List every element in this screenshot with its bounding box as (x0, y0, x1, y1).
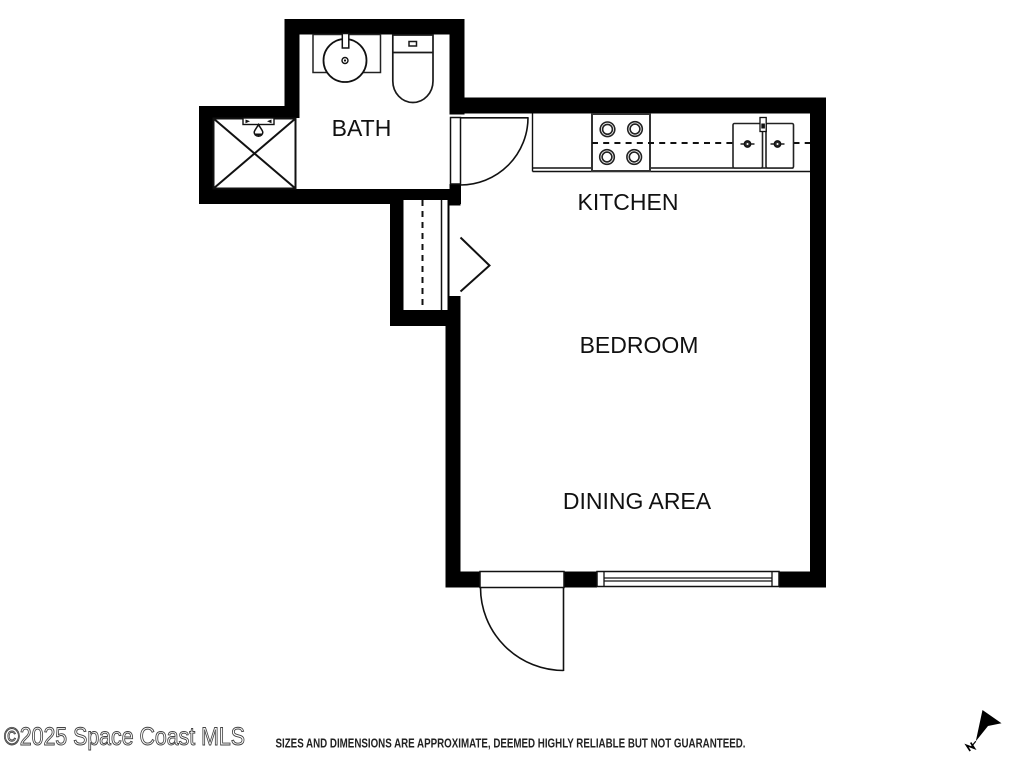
svg-text:SIZES AND DIMENSIONS ARE APPRO: SIZES AND DIMENSIONS ARE APPROXIMATE, DE… (276, 737, 746, 751)
svg-text:BEDROOM: BEDROOM (580, 332, 699, 358)
svg-text:DINING AREA: DINING AREA (563, 488, 712, 514)
svg-text:KITCHEN: KITCHEN (578, 189, 679, 215)
svg-text:BATH: BATH (332, 115, 392, 141)
svg-text:©2025 Space Coast MLS: ©2025 Space Coast MLS (4, 723, 245, 751)
